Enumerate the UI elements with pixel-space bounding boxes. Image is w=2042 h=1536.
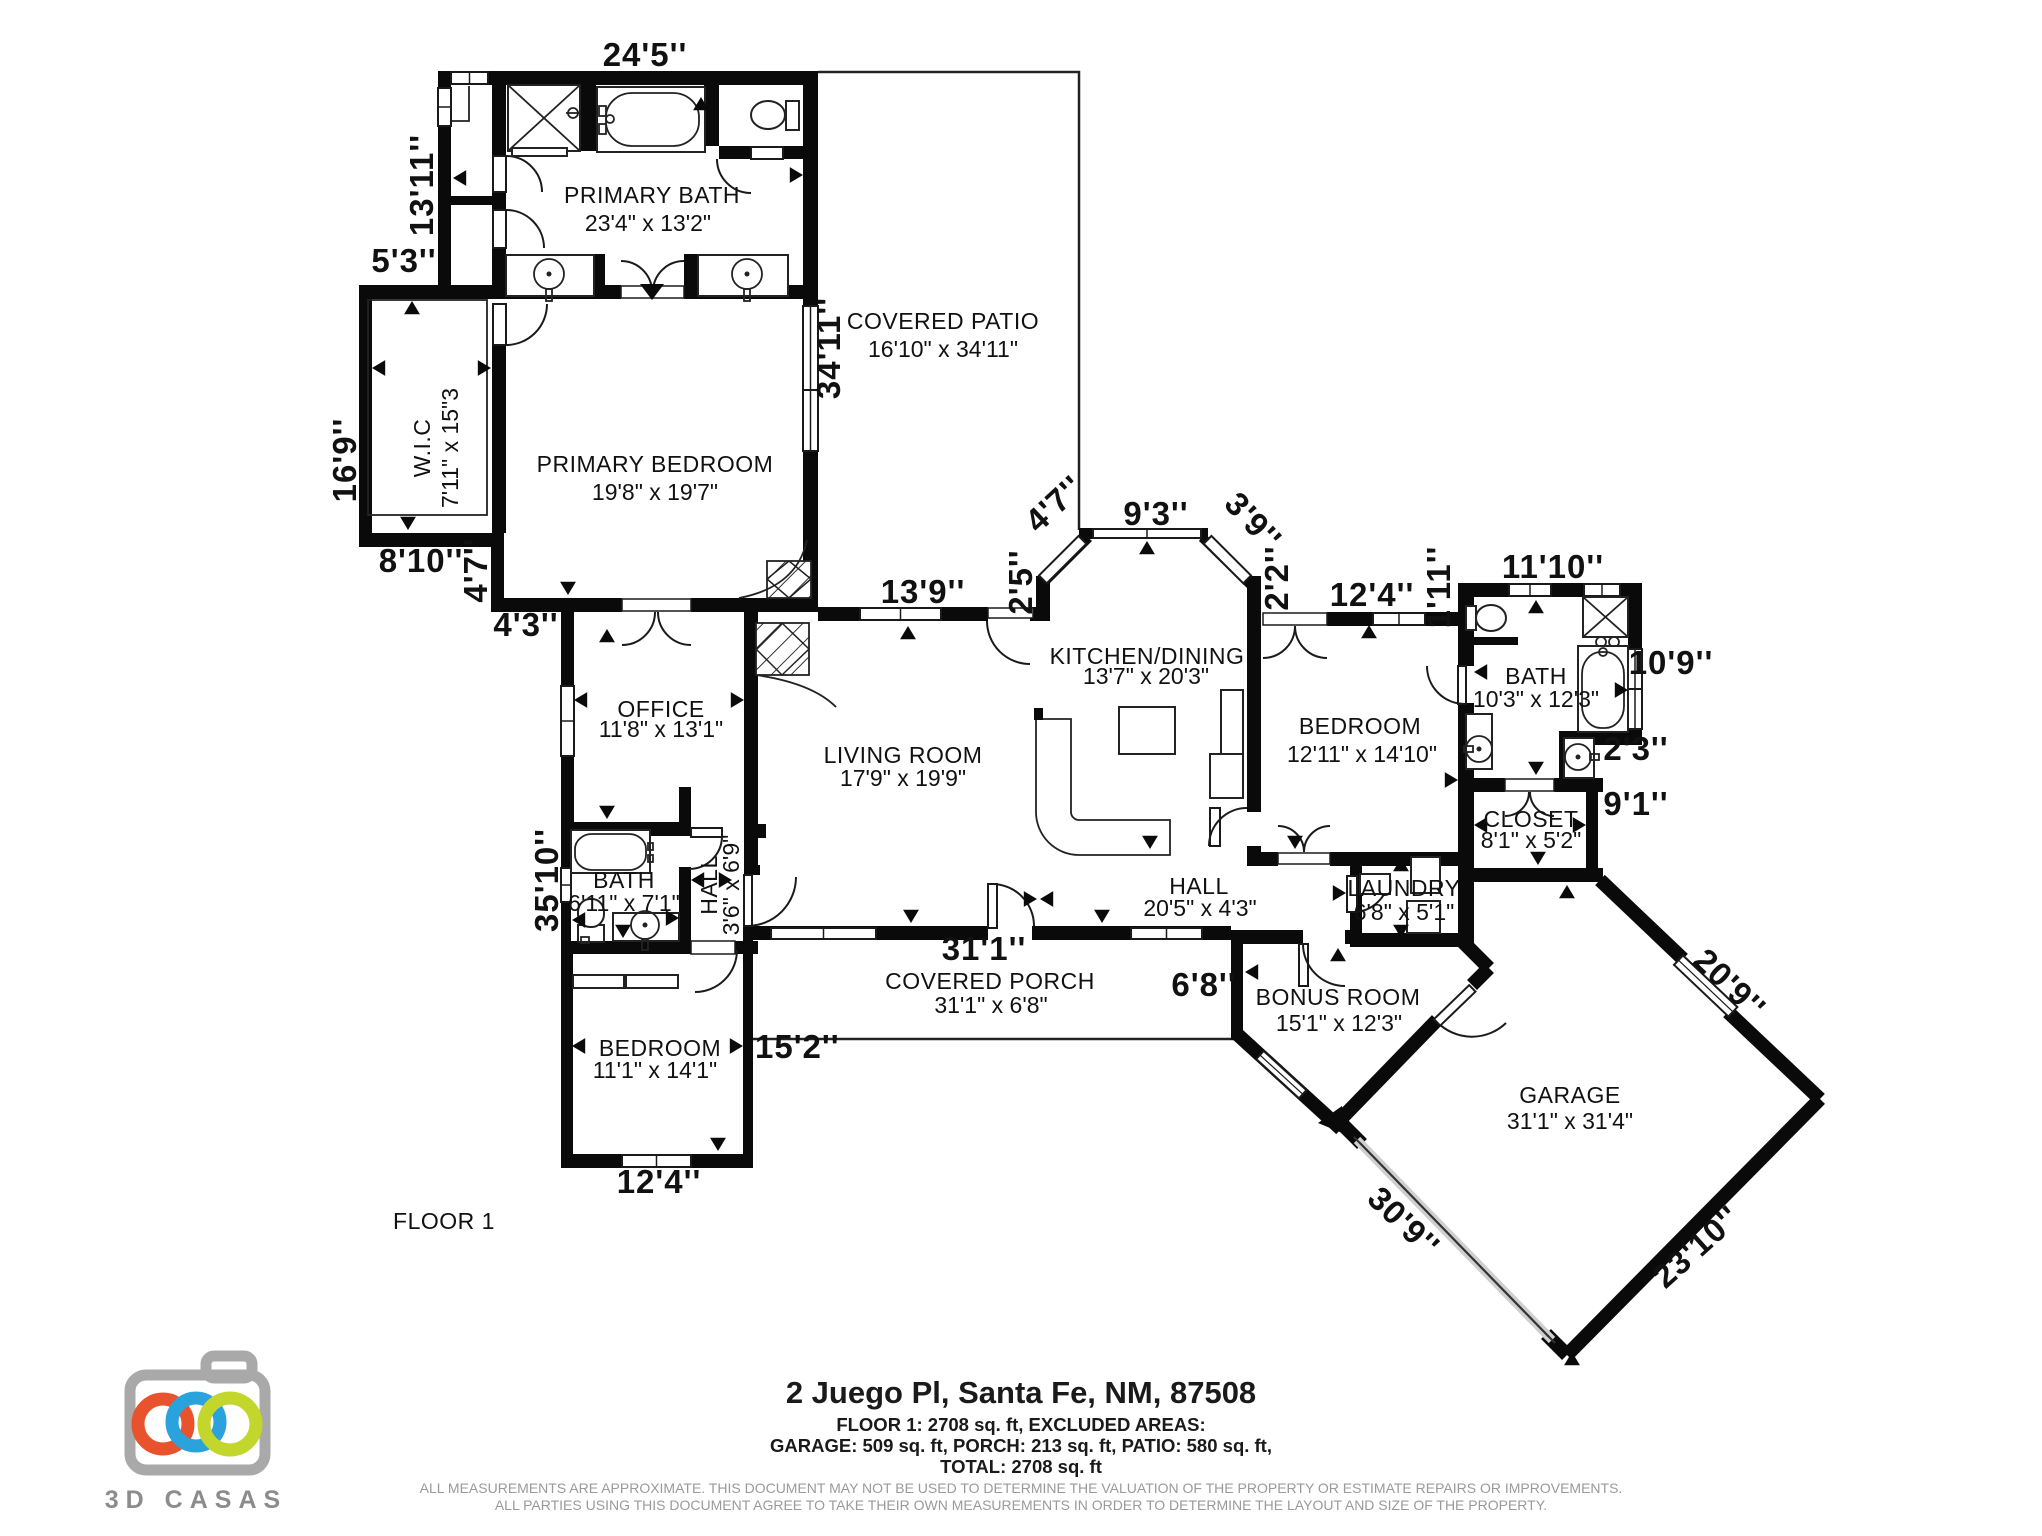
svg-text:31'1'': 31'1'' xyxy=(942,930,1027,967)
svg-text:15'2'': 15'2'' xyxy=(755,1028,840,1065)
svg-text:17'9" x 19'9": 17'9" x 19'9" xyxy=(840,765,966,791)
svg-text:16'9'': 16'9'' xyxy=(326,418,363,503)
svg-text:13'11'': 13'11'' xyxy=(403,134,440,236)
svg-text:8'10'': 8'10'' xyxy=(379,542,464,579)
svg-text:6'8'': 6'8'' xyxy=(1171,966,1236,1003)
svg-text:4'3'': 4'3'' xyxy=(493,606,558,643)
svg-text:COVERED PATIO: COVERED PATIO xyxy=(847,308,1039,334)
svg-text:PRIMARY BEDROOM: PRIMARY BEDROOM xyxy=(537,451,774,477)
svg-text:6'11" x 7'1": 6'11" x 7'1" xyxy=(568,890,680,916)
svg-text:TOTAL: 2708 sq. ft: TOTAL: 2708 sq. ft xyxy=(940,1456,1102,1477)
svg-text:13'7" x 20'3": 13'7" x 20'3" xyxy=(1083,663,1209,689)
svg-text:6'8" x 5'1": 6'8" x 5'1" xyxy=(1354,899,1455,925)
svg-text:11'8" x 13'1": 11'8" x 13'1" xyxy=(599,716,723,742)
svg-text:FLOOR 1: 2708 sq. ft, EXCLUDED: FLOOR 1: 2708 sq. ft, EXCLUDED AREAS: xyxy=(836,1414,1205,1435)
svg-text:3D CASAS: 3D CASAS xyxy=(105,1486,287,1514)
svg-text:13'9'': 13'9'' xyxy=(881,573,966,610)
svg-text:GARAGE: 509 sq. ft, PORCH: 213: GARAGE: 509 sq. ft, PORCH: 213 sq. ft, P… xyxy=(770,1435,1272,1456)
svg-text:5'3'': 5'3'' xyxy=(371,242,436,279)
svg-text:COVERED PORCH: COVERED PORCH xyxy=(885,968,1095,994)
svg-text:ALL PARTIES USING THIS DOCUMEN: ALL PARTIES USING THIS DOCUMENT AGREE TO… xyxy=(495,1497,1547,1513)
svg-text:FLOOR 1: FLOOR 1 xyxy=(393,1208,495,1234)
svg-text:2'3'': 2'3'' xyxy=(1603,730,1668,767)
svg-text:2'5'': 2'5'' xyxy=(1002,549,1039,614)
svg-text:15'1" x 12'3": 15'1" x 12'3" xyxy=(1276,1010,1402,1036)
svg-text:3'6" x 6'9": 3'6" x 6'9" xyxy=(718,835,744,936)
svg-text:1'11'': 1'11'' xyxy=(1420,546,1457,629)
svg-text:11'10'': 11'10'' xyxy=(1502,548,1604,585)
svg-text:BEDROOM: BEDROOM xyxy=(1299,713,1421,739)
svg-text:12'4'': 12'4'' xyxy=(1330,576,1415,613)
svg-text:24'5'': 24'5'' xyxy=(603,36,688,73)
svg-text:11'1" x 14'1": 11'1" x 14'1" xyxy=(593,1057,717,1083)
svg-text:19'8" x 19'7": 19'8" x 19'7" xyxy=(592,479,718,505)
svg-text:LAUNDRY: LAUNDRY xyxy=(1348,875,1461,901)
svg-text:23'4" x 13'2": 23'4" x 13'2" xyxy=(585,210,711,236)
svg-text:20'5" x 4'3": 20'5" x 4'3" xyxy=(1143,895,1256,921)
svg-text:10'9'': 10'9'' xyxy=(1629,644,1714,681)
svg-text:4'7'': 4'7'' xyxy=(457,537,494,602)
svg-text:31'1" x 31'4": 31'1" x 31'4" xyxy=(1507,1108,1633,1134)
svg-text:PRIMARY BATH: PRIMARY BATH xyxy=(564,182,740,208)
svg-text:12'11" x 14'10": 12'11" x 14'10" xyxy=(1287,741,1437,767)
svg-text:12'4'': 12'4'' xyxy=(617,1163,702,1200)
svg-text:2'2'': 2'2'' xyxy=(1258,545,1295,610)
svg-text:31'1" x 6'8": 31'1" x 6'8" xyxy=(934,992,1047,1018)
svg-text:2 Juego Pl, Santa Fe, NM, 8750: 2 Juego Pl, Santa Fe, NM, 87508 xyxy=(786,1375,1256,1410)
svg-text:10'3" x 12'3": 10'3" x 12'3" xyxy=(1473,686,1599,712)
svg-text:GARAGE: GARAGE xyxy=(1519,1082,1620,1108)
svg-text:W.I.C: W.I.C xyxy=(409,419,435,478)
svg-text:8'1" x 5'2": 8'1" x 5'2" xyxy=(1481,827,1582,853)
svg-text:9'3'': 9'3'' xyxy=(1123,495,1188,532)
svg-text:9'1'': 9'1'' xyxy=(1603,785,1668,822)
svg-text:34'11'': 34'11'' xyxy=(810,297,847,399)
svg-text:7'11" x 15"3: 7'11" x 15"3 xyxy=(437,388,463,508)
svg-text:BONUS ROOM: BONUS ROOM xyxy=(1256,984,1421,1010)
svg-text:16'10" x 34'11": 16'10" x 34'11" xyxy=(868,336,1018,362)
svg-text:35'10'': 35'10'' xyxy=(528,828,565,932)
svg-text:ALL MEASUREMENTS ARE APPROXIMA: ALL MEASUREMENTS ARE APPROXIMATE. THIS D… xyxy=(420,1480,1623,1496)
